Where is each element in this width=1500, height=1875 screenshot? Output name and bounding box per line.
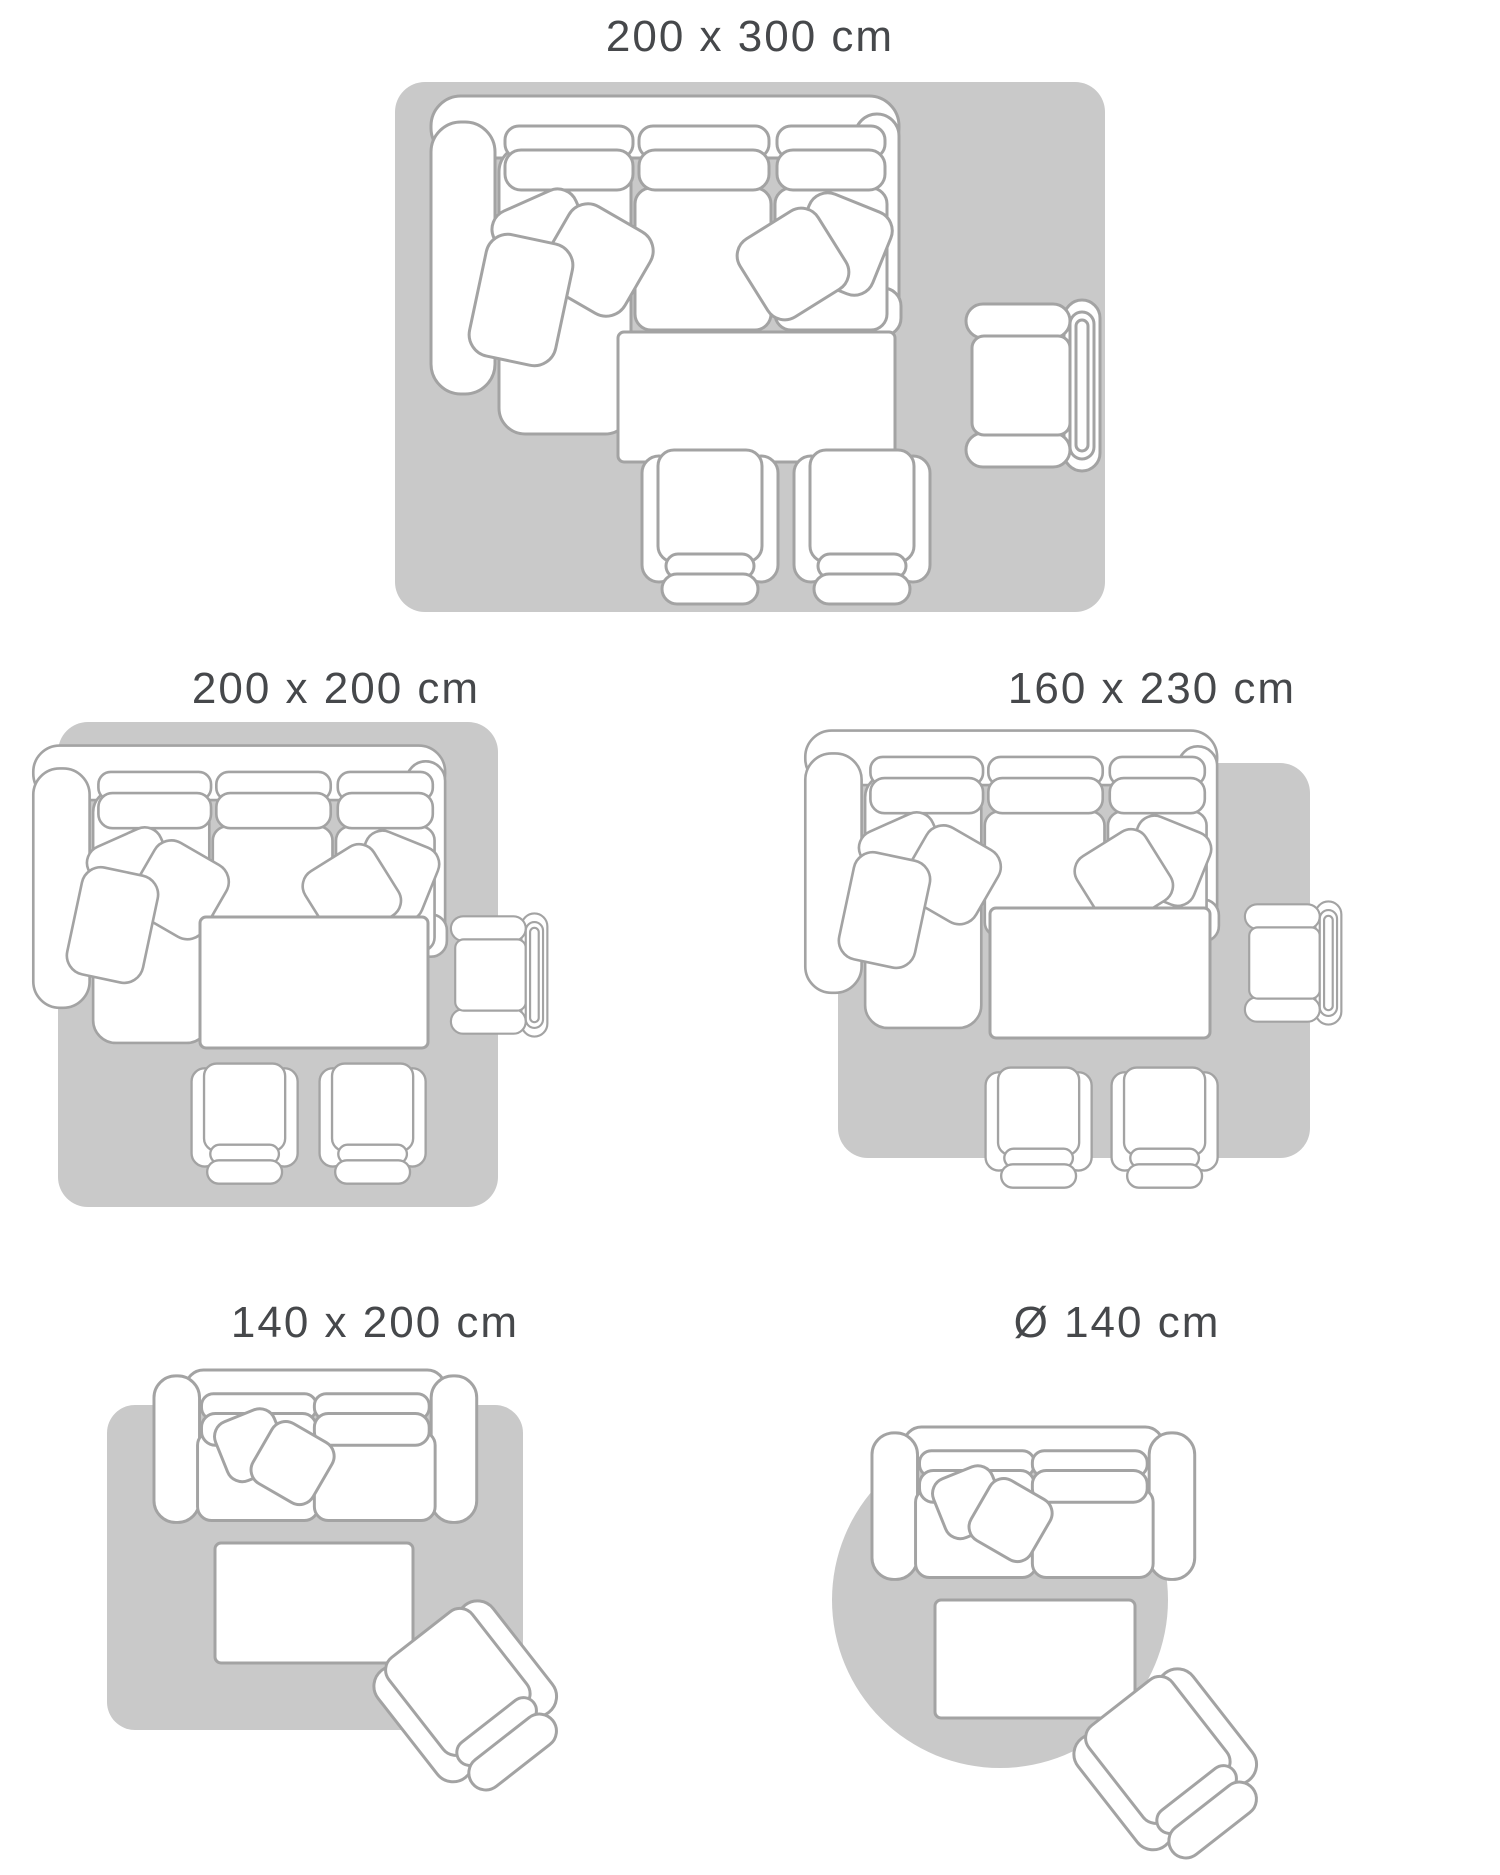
size-label-200x200: 200 x 200 cm: [192, 664, 480, 714]
two-seat-sofa: [154, 1370, 477, 1522]
layout-200x300: [395, 82, 1105, 612]
small-armchair-1: [192, 1064, 298, 1184]
size-label-200x300: 200 x 300 cm: [606, 12, 894, 62]
layout-200x200: [33, 722, 547, 1207]
rug-size-guide: 200 x 300 cm 200 x 200 cm 160 x 230 cm 1…: [0, 0, 1500, 1875]
armchair: [451, 913, 547, 1036]
small-armchair-1: [986, 1068, 1092, 1188]
layout-160x230: [805, 731, 1341, 1188]
layout-d140: [832, 1427, 1281, 1875]
two-seat-sofa: [872, 1427, 1195, 1579]
armchair: [966, 300, 1100, 471]
coffee-table: [200, 917, 428, 1048]
coffee-table: [215, 1543, 413, 1663]
size-label-d140: Ø 140 cm: [1014, 1298, 1221, 1348]
small-armchair-2: [794, 450, 930, 604]
coffee-table: [935, 1600, 1135, 1718]
size-label-140x200: 140 x 200 cm: [231, 1298, 519, 1348]
small-armchair-2: [1112, 1068, 1218, 1188]
coffee-table: [990, 908, 1210, 1038]
size-label-160x230: 160 x 230 cm: [1008, 664, 1296, 714]
small-armchair-1: [642, 450, 778, 604]
size-guide-canvas: [0, 0, 1500, 1875]
small-armchair-2: [320, 1064, 426, 1184]
coffee-table: [618, 332, 895, 462]
armchair: [1245, 901, 1341, 1024]
layout-140x200: [107, 1370, 581, 1810]
